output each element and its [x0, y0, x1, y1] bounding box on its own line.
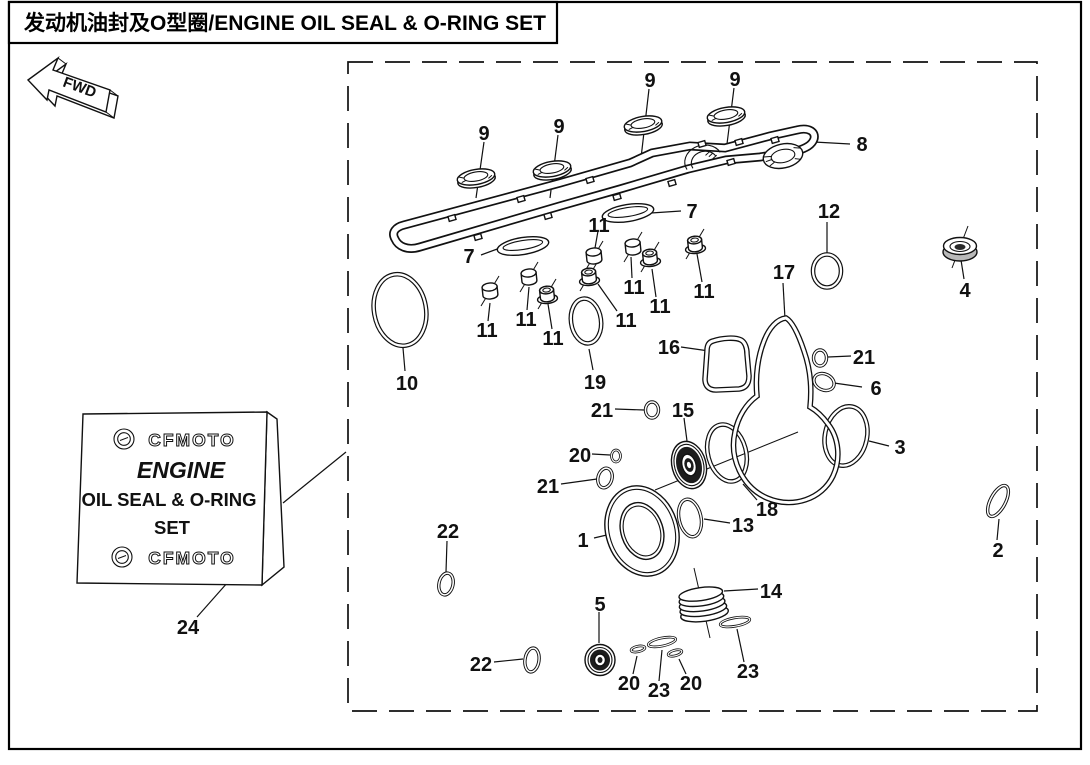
part-23-seal-a: [647, 635, 676, 649]
brand-text-bottom: CFMOTO: [148, 548, 236, 568]
callout-10: 10: [396, 373, 418, 395]
callout-9: 9: [478, 123, 489, 145]
callout-11: 11: [515, 309, 536, 331]
kit-title-line1: ENGINE: [137, 457, 226, 483]
kit-label-card: CFMOTO ENGINE OIL SEAL & O-RING SET CFMO…: [77, 412, 284, 585]
part-23-seal-b: [719, 615, 750, 628]
callout-20: 20: [618, 673, 640, 695]
callout-13: 13: [732, 515, 754, 537]
axis-lines: [481, 226, 968, 638]
part-10-oring: [368, 270, 432, 350]
part-22-oring-b: [523, 647, 540, 673]
callout-21: 21: [591, 400, 613, 422]
callout-11: 11: [542, 328, 563, 350]
callout-7: 7: [686, 201, 697, 223]
callout-4: 4: [959, 280, 971, 302]
callout-23: 23: [737, 661, 759, 683]
callout-17: 17: [773, 262, 795, 284]
part-2-oring: [983, 482, 1012, 519]
callout-22: 22: [470, 654, 492, 676]
callout-2: 2: [992, 540, 1003, 562]
callout-20: 20: [680, 673, 702, 695]
callout-14: 14: [760, 581, 783, 603]
gasket-end-ring: [761, 140, 805, 172]
callout-12: 12: [818, 201, 840, 223]
callout-11: 11: [476, 320, 497, 342]
callout-9: 9: [644, 70, 655, 92]
callout-22: 22: [437, 521, 459, 543]
part-20-seal-c: [668, 648, 683, 657]
part-14-cap: [677, 584, 729, 624]
callout-18: 18: [756, 499, 778, 521]
callout-16: 16: [658, 337, 680, 359]
callout-1: 1: [577, 530, 588, 552]
callout-11: 11: [588, 215, 609, 237]
callout-labels: 9 9 9 9 8 7 7 11 11 11 11 11 11 11 11 12…: [177, 69, 1004, 702]
page-title: 发动机油封及O型圈/ENGINE OIL SEAL & O-RING SET: [23, 11, 546, 35]
kit-title-line2: OIL SEAL & O-RING: [81, 489, 256, 510]
callout-11: 11: [693, 281, 714, 303]
part-12-oring: [813, 255, 841, 288]
part-5-seal: [585, 645, 615, 676]
title-block: 发动机油封及O型圈/ENGINE OIL SEAL & O-RING SET: [9, 2, 557, 43]
callout-20: 20: [569, 445, 591, 467]
callout-11: 11: [615, 310, 636, 332]
callout-21: 21: [537, 476, 559, 498]
callout-15: 15: [672, 400, 694, 422]
kit-title-line3: SET: [154, 517, 191, 538]
part-22-oring-a: [437, 572, 455, 596]
fwd-arrow-icon: FWD: [28, 58, 118, 118]
part-19-oring: [568, 297, 604, 346]
part-13-oring: [675, 497, 704, 539]
callout-11: 11: [649, 296, 670, 318]
part-17-pump-gasket: [734, 318, 838, 502]
part-1-oil-seal: [594, 476, 691, 586]
callout-6: 6: [870, 378, 881, 400]
callout-11: 11: [623, 277, 644, 299]
callout-9: 9: [553, 116, 564, 138]
callout-19: 19: [584, 372, 606, 394]
callout-7: 7: [463, 246, 474, 268]
part-20-oring-a: [612, 450, 621, 462]
page-border: [9, 2, 1081, 749]
callout-21: 21: [853, 347, 875, 369]
callout-24: 24: [177, 617, 200, 639]
parts-diagram: 发动机油封及O型圈/ENGINE OIL SEAL & O-RING SET F…: [0, 0, 1090, 760]
callout-5: 5: [594, 594, 605, 616]
part-20-seal-b: [631, 645, 646, 653]
part-6-oring: [811, 370, 837, 393]
part-3-oring: [819, 402, 873, 469]
part-4-grommet: [943, 238, 977, 262]
callout-3: 3: [894, 437, 905, 459]
callout-8: 8: [856, 134, 867, 156]
catalog-page: 发动机油封及O型圈/ENGINE OIL SEAL & O-RING SET F…: [0, 0, 1090, 760]
part-21-oring-c: [596, 467, 615, 490]
brand-text-top: CFMOTO: [148, 430, 236, 450]
callout-23: 23: [648, 680, 670, 702]
part-21-oring-b: [646, 402, 659, 418]
callout-9: 9: [729, 69, 740, 91]
part-16-gasket: [705, 338, 749, 390]
part-21-oring-a: [814, 350, 827, 366]
